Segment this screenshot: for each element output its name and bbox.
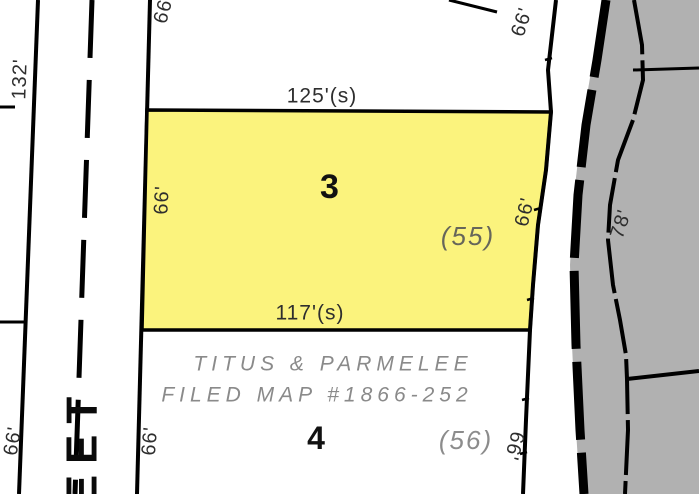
dim-label-66-parcel4-west: 66' bbox=[138, 426, 162, 457]
plat-map: 132' 66' EET 66' 66' 125'(s) 66' 3 (55) … bbox=[0, 0, 699, 494]
dim-label-132: 132' bbox=[8, 58, 31, 100]
filed-map-note-line1: TITUS & PARMELEE bbox=[193, 353, 472, 376]
street-name-label: EET bbox=[58, 386, 107, 494]
filed-map-note-line2: FILED MAP #1866-252 bbox=[161, 384, 472, 407]
dim-label-125s: 125'(s) bbox=[287, 85, 358, 108]
parcel-4-alt-number: (56) bbox=[439, 425, 493, 455]
parcel-3-highlighted-polygon[interactable] bbox=[142, 110, 551, 330]
dim-label-117s: 117'(s) bbox=[276, 302, 345, 325]
gray-area-boundary-line-upper bbox=[633, 68, 699, 70]
parcel-4-number: 4 bbox=[307, 420, 325, 456]
parcel-3-number: 3 bbox=[320, 168, 340, 206]
parcel-3-alt-number: (55) bbox=[441, 221, 495, 251]
dim-label-66-parcel3-west: 66' bbox=[150, 185, 173, 215]
